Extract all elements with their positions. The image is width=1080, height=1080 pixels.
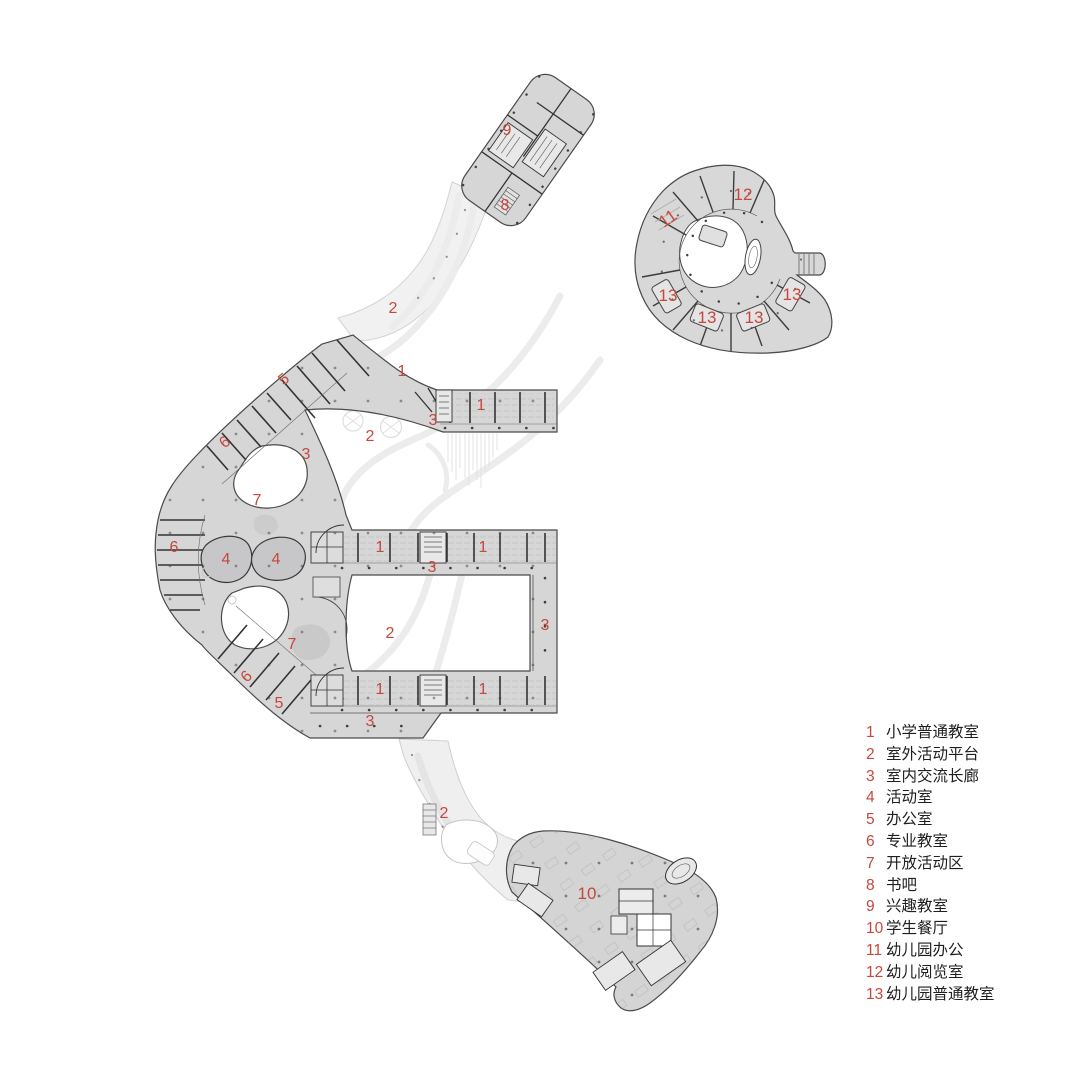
- legend-item: 3室内交流长廊: [866, 766, 1066, 788]
- room-number-label: 3: [541, 617, 550, 634]
- room-number-label: 1: [376, 681, 385, 698]
- legend-item: 4活动室: [866, 787, 1066, 809]
- legend-item-number: 2: [866, 744, 886, 766]
- room-number-label: 2: [366, 428, 375, 445]
- legend-item: 9兴趣教室: [866, 896, 1066, 918]
- legend-item-number: 13: [866, 984, 886, 1006]
- legend-item-label: 活动室: [886, 787, 933, 809]
- legend-item-label: 学生餐厅: [886, 918, 948, 940]
- room-number-label: 1: [477, 397, 486, 414]
- legend-item-number: 8: [866, 875, 886, 897]
- room-number-label: 1: [398, 363, 407, 380]
- legend-item-number: 5: [866, 809, 886, 831]
- walkway-north: [338, 182, 490, 341]
- legend-item: 1小学普通教室: [866, 722, 1066, 744]
- column-dots-grid: [155, 335, 557, 738]
- legend-item-number: 9: [866, 896, 886, 918]
- legend-item: 11幼儿园办公: [866, 940, 1066, 962]
- room-number-label: 1: [376, 539, 385, 556]
- room-number-label: 13: [698, 308, 717, 327]
- room-number-label: 2: [389, 300, 398, 317]
- legend-item-label: 开放活动区: [886, 853, 964, 875]
- room-number-label: 4: [272, 551, 281, 568]
- room-number-label: 3: [429, 412, 438, 429]
- legend-item: 7开放活动区: [866, 853, 1066, 875]
- room-number-label: 13: [745, 308, 764, 327]
- primary-school-building: [155, 335, 557, 738]
- legend: 1小学普通教室2室外活动平台3室内交流长廊4活动室5办公室6专业教室7开放活动区…: [866, 722, 1066, 1005]
- legend-item-number: 6: [866, 831, 886, 853]
- legend-item: 12幼儿阅览室: [866, 962, 1066, 984]
- legend-item-label: 室外活动平台: [886, 744, 979, 766]
- room-number-label: 3: [366, 713, 375, 730]
- floor-plan-page: 9812111313131325113263764411323765113210…: [0, 0, 1080, 1080]
- legend-item-number: 12: [866, 962, 886, 984]
- room-number-label: 1: [479, 539, 488, 556]
- landscape-streams: [318, 196, 600, 852]
- deco-circle: [228, 596, 236, 604]
- legend-item-number: 1: [866, 722, 886, 744]
- legend-item-label: 幼儿园普通教室: [886, 984, 995, 1006]
- legend-item-label: 室内交流长廊: [886, 766, 979, 788]
- legend-item-number: 11: [866, 940, 886, 962]
- legend-item: 5办公室: [866, 809, 1066, 831]
- cafeteria-building: [500, 820, 730, 1020]
- room-number-label: 3: [428, 559, 437, 576]
- room-number-label: 1: [479, 681, 488, 698]
- legend-item: 13幼儿园普通教室: [866, 984, 1066, 1006]
- room-number-label: 13: [783, 285, 802, 304]
- legend-item-label: 书吧: [886, 875, 917, 897]
- room-number-label: 2: [386, 625, 395, 642]
- room-number-label: 3: [302, 446, 311, 463]
- room-number-label: 5: [275, 695, 284, 712]
- legend-item-label: 幼儿园办公: [886, 940, 964, 962]
- legend-item: 8书吧: [866, 875, 1066, 897]
- kindergarten-courtyard: [680, 216, 748, 287]
- room-number-label: 13: [659, 286, 678, 305]
- legend-item-label: 专业教室: [886, 831, 948, 853]
- room-number-label: 9: [503, 122, 512, 139]
- legend-item-label: 小学普通教室: [886, 722, 979, 744]
- room-number-label: 2: [440, 805, 449, 822]
- room-number-label: 6: [170, 539, 179, 556]
- legend-item: 6专业教室: [866, 831, 1066, 853]
- room-number-label: 12: [734, 185, 753, 204]
- legend-item-number: 10: [866, 918, 886, 940]
- legend-item-number: 3: [866, 766, 886, 788]
- legend-item: 10学生餐厅: [866, 918, 1066, 940]
- room-number-label: 7: [288, 636, 297, 653]
- legend-item-label: 幼儿阅览室: [886, 962, 964, 984]
- room-number-label: 10: [578, 884, 597, 903]
- legend-item-label: 办公室: [886, 809, 933, 831]
- walkway-stairs: [423, 804, 436, 835]
- legend-item-label: 兴趣教室: [886, 896, 948, 918]
- room-number-label: 7: [253, 492, 262, 509]
- room-number-label: 8: [501, 197, 510, 214]
- room-number-label: 4: [222, 551, 231, 568]
- legend-item: 2室外活动平台: [866, 744, 1066, 766]
- legend-item-number: 4: [866, 787, 886, 809]
- legend-item-number: 7: [866, 853, 886, 875]
